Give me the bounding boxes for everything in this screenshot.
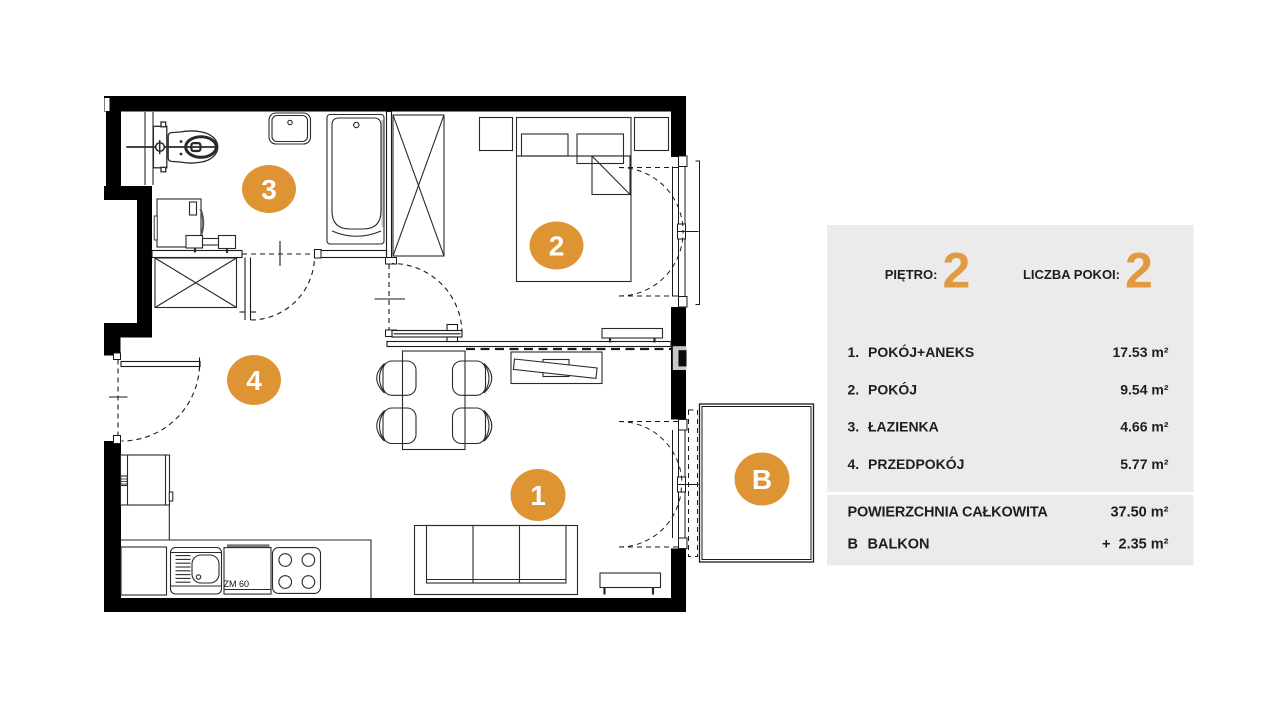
svg-text:37.50 m²: 37.50 m² [1110,505,1168,521]
svg-text:PIĘTRO:: PIĘTRO: [885,267,938,282]
svg-text:4.: 4. [848,456,860,472]
svg-text:9.54 m²: 9.54 m² [1120,381,1169,397]
svg-text:POWIERZCHNIA CAŁKOWITA: POWIERZCHNIA CAŁKOWITA [848,505,1049,521]
svg-text:POKÓJ+ANEKS: POKÓJ+ANEKS [868,343,974,360]
svg-text:3.: 3. [848,419,860,435]
svg-text:2: 2 [549,231,565,262]
svg-text:3: 3 [261,174,277,205]
svg-text:2.: 2. [848,381,860,397]
svg-text:1.: 1. [848,344,860,360]
svg-text:POKÓJ: POKÓJ [868,380,917,397]
svg-text:1: 1 [530,480,546,511]
svg-text:ŁAZIENKA: ŁAZIENKA [868,419,939,435]
svg-text:ZM 60: ZM 60 [224,579,250,589]
svg-text:2: 2 [943,243,971,299]
svg-text:4: 4 [246,365,262,396]
svg-text:17.53 m²: 17.53 m² [1112,344,1168,360]
svg-text:PRZEDPOKÓJ: PRZEDPOKÓJ [868,455,964,472]
svg-text:5.77 m²: 5.77 m² [1120,456,1169,472]
svg-text:B: B [848,537,858,553]
svg-text:+: + [1102,537,1110,553]
svg-text:2.35 m²: 2.35 m² [1119,537,1169,553]
svg-text:4.66 m²: 4.66 m² [1120,419,1169,435]
svg-text:2: 2 [1125,243,1153,299]
svg-text:BALKON: BALKON [868,537,930,553]
svg-text:LICZBA POKOI:: LICZBA POKOI: [1023,267,1120,282]
svg-text:B: B [752,464,772,495]
